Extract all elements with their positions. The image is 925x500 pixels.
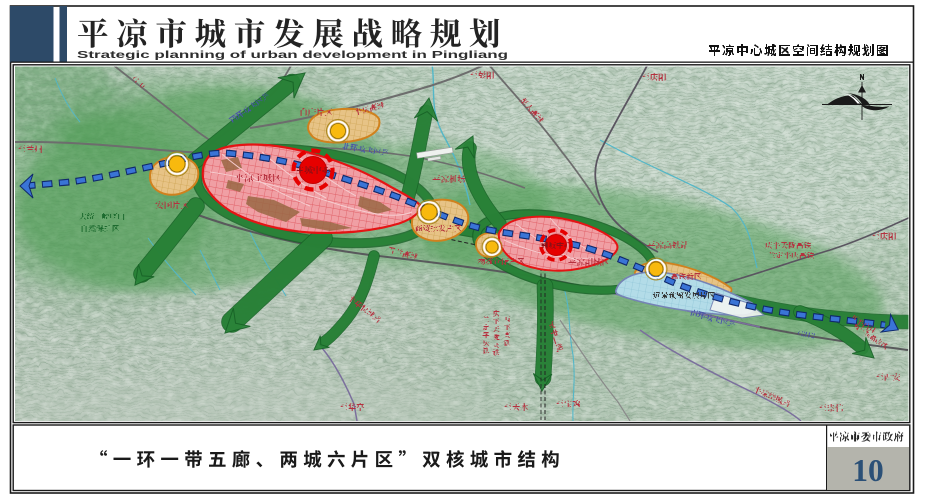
svg-text:Strategic planning of urban de: Strategic planning of urban development … [77, 50, 508, 61]
svg-text:10: 10 [852, 453, 884, 488]
